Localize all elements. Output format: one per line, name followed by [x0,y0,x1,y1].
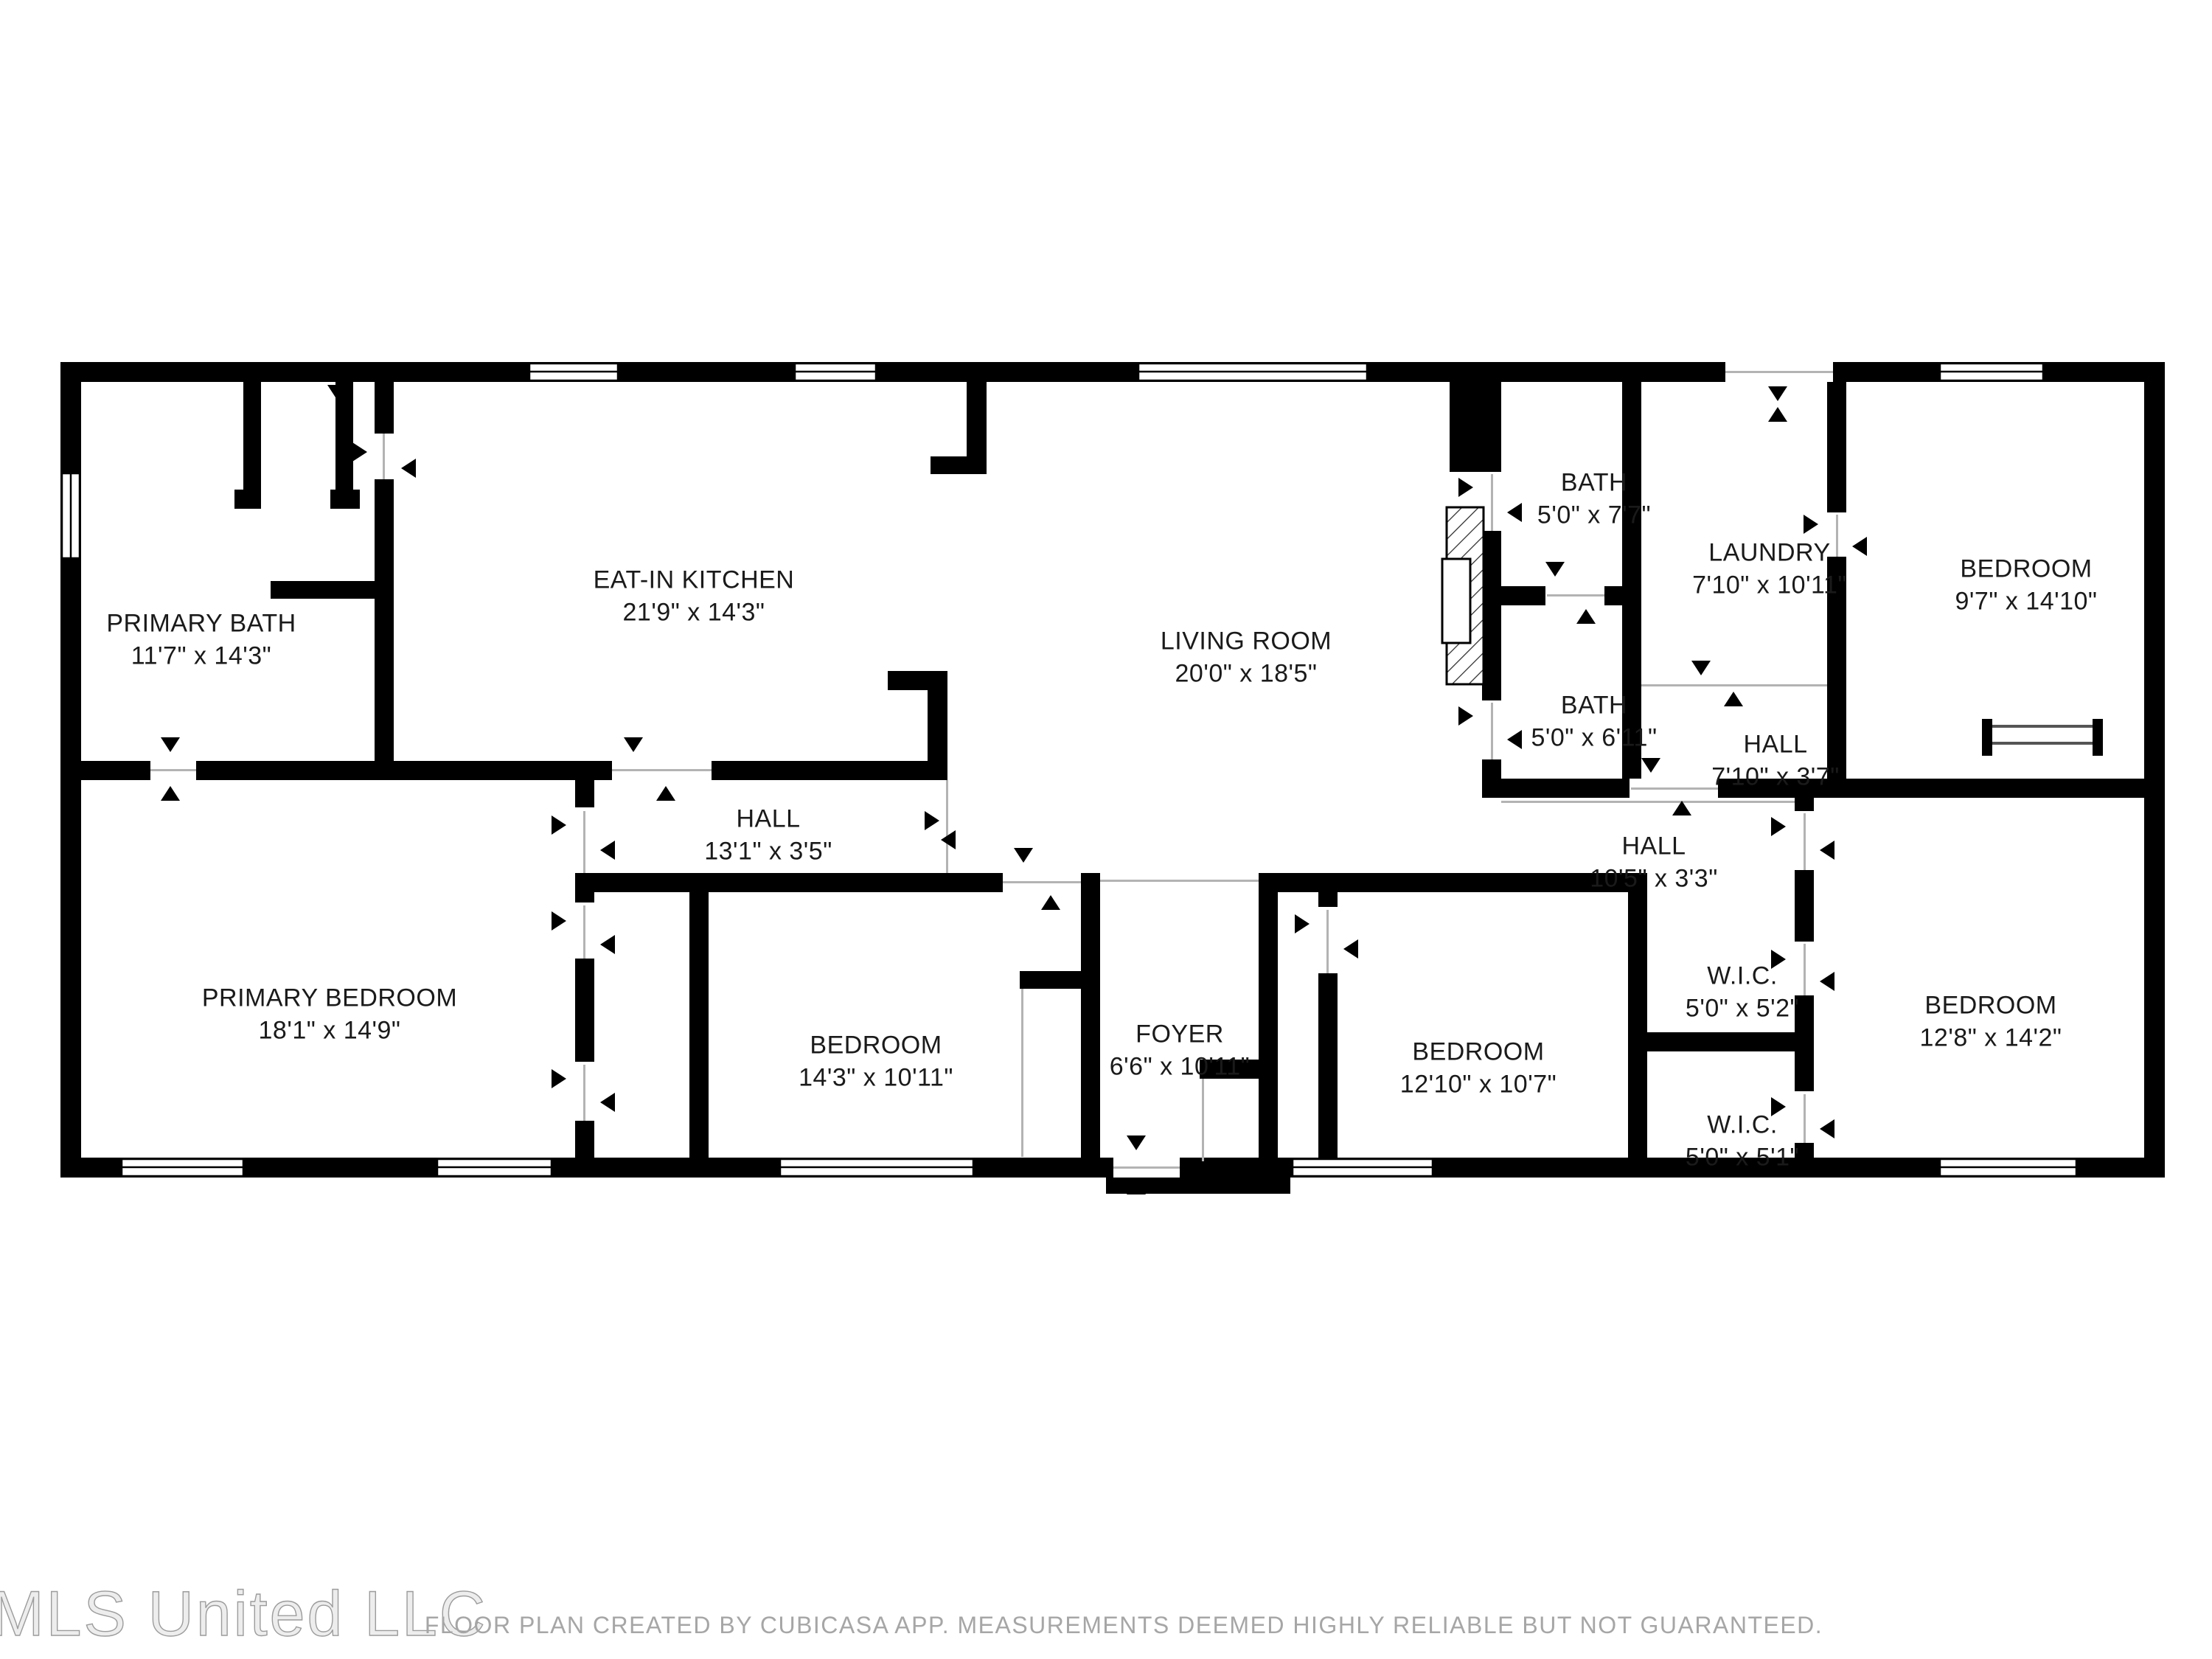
window [1940,364,2043,380]
room-name: BEDROOM [1920,990,2062,1022]
room-dims: 12'10" x 10'7" [1400,1068,1557,1101]
floor-plan-drawing [0,0,2212,1659]
room-name: LIVING ROOM [1161,625,1332,658]
room-name: PRIMARY BEDROOM [202,982,457,1015]
room-name: BEDROOM [1955,553,2098,585]
room-name: FOYER [1110,1018,1250,1051]
room-label-primary-bath: PRIMARY BATH11'7" x 14'3" [106,608,296,672]
room-name: PRIMARY BATH [106,608,296,640]
room-dims: 9'7" x 14'10" [1955,585,2098,618]
room-name: HALL [1590,830,1718,863]
window [437,1159,552,1176]
room-name: HALL [1711,728,1840,761]
room-label-bedroom-lower-middle: BEDROOM12'10" x 10'7" [1400,1036,1557,1100]
floor-plan: PRIMARY BATH11'7" x 14'3" EAT-IN KITCHEN… [0,0,2212,1659]
window [1940,1159,2076,1176]
room-dims: 7'10" x 3'7" [1711,761,1840,793]
room-dims: 20'0" x 18'5" [1161,658,1332,690]
closet-lines [1982,719,2103,756]
room-name: W.I.C. [1686,960,1799,992]
fireplace [1442,507,1484,684]
room-label-bedroom-lower-right: BEDROOM12'8" x 14'2" [1920,990,2062,1054]
window [780,1159,973,1176]
room-name: BEDROOM [799,1029,953,1062]
window [529,364,618,380]
room-label-eat-in-kitchen: EAT-IN KITCHEN21'9" x 14'3" [594,564,795,628]
room-name: BATH [1537,467,1651,499]
room-name: BEDROOM [1400,1036,1557,1068]
room-label-hall-lower-right: HALL10'5" x 3'3" [1590,830,1718,894]
room-name: EAT-IN KITCHEN [594,564,795,597]
room-dims: 12'8" x 14'2" [1920,1022,2062,1054]
disclaimer-text: FLOOR PLAN CREATED BY CUBICASA APP. MEAS… [425,1612,1823,1639]
room-label-bedroom-top-right: BEDROOM9'7" x 14'10" [1955,553,2098,617]
window [62,473,80,558]
room-dims: 14'3" x 10'11" [799,1062,953,1094]
room-dims: 6'6" x 10'11" [1110,1051,1250,1083]
room-name: W.I.C. [1686,1109,1799,1141]
room-label-bath-2: BATH5'0" x 6'11" [1531,689,1657,754]
room-dims: 18'1" x 14'9" [202,1015,457,1047]
window [1293,1159,1433,1176]
room-label-laundry: LAUNDRY7'10" x 10'11" [1692,537,1847,601]
room-dims: 7'10" x 10'11" [1692,569,1847,602]
room-dims: 5'0" x 5'1" [1686,1141,1799,1174]
room-dims: 5'0" x 5'2" [1686,992,1799,1025]
room-dims: 5'0" x 6'11" [1531,722,1657,754]
room-name: HALL [704,803,832,835]
room-label-foyer: FOYER6'6" x 10'11" [1110,1018,1250,1082]
window [795,364,876,380]
room-label-hall-center: HALL13'1" x 3'5" [704,803,832,867]
watermark: MLS United LLC [0,1578,487,1651]
room-dims: 10'5" x 3'3" [1590,863,1718,895]
room-dims: 21'9" x 14'3" [594,597,795,629]
room-label-living-room: LIVING ROOM20'0" x 18'5" [1161,625,1332,689]
room-label-wic-2: W.I.C.5'0" x 5'1" [1686,1109,1799,1173]
room-dims: 13'1" x 3'5" [704,835,832,868]
room-label-hall-right: HALL7'10" x 3'7" [1711,728,1840,793]
room-name: BATH [1531,689,1657,722]
window [122,1159,243,1176]
room-dims: 11'7" x 14'3" [106,640,296,672]
room-label-bath-1: BATH5'0" x 7'7" [1537,467,1651,531]
room-label-wic-1: W.I.C.5'0" x 5'2" [1686,960,1799,1024]
window [1138,364,1367,380]
room-label-bedroom-center: BEDROOM14'3" x 10'11" [799,1029,953,1093]
room-label-primary-bedroom: PRIMARY BEDROOM18'1" x 14'9" [202,982,457,1046]
room-name: LAUNDRY [1692,537,1847,569]
room-dims: 5'0" x 7'7" [1537,499,1651,532]
